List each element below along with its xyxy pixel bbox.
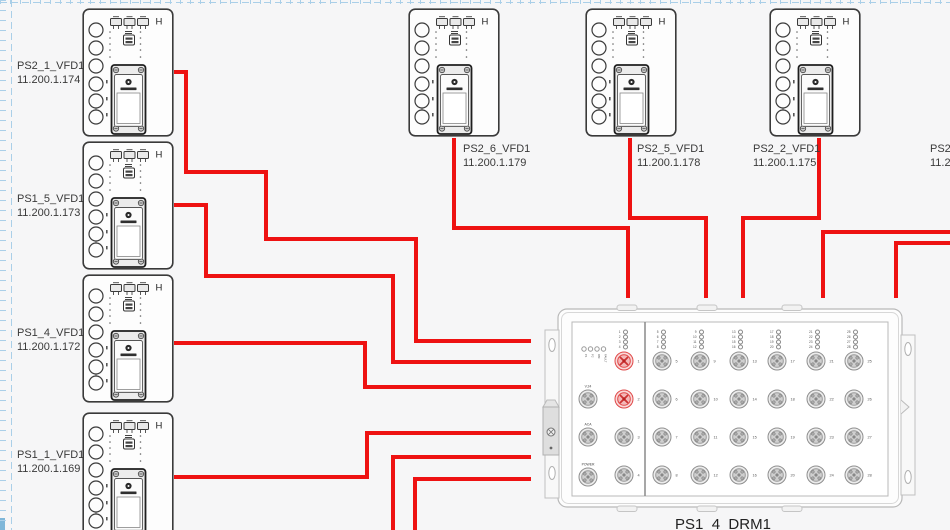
m12-port-8: [653, 466, 671, 484]
svg-text:19: 19: [791, 436, 795, 440]
svg-text:21: 21: [809, 330, 813, 334]
svg-text:28: 28: [847, 345, 851, 349]
device-ip: 11.200.1.178: [637, 157, 700, 169]
svg-text:3: 3: [619, 340, 621, 344]
svg-text:15: 15: [753, 436, 757, 440]
side-port-POWER: [579, 468, 597, 486]
m12-port-7: [653, 428, 671, 446]
m12-port-25: [845, 352, 863, 370]
svg-text:18: 18: [770, 335, 774, 339]
svg-text:H: H: [659, 17, 666, 28]
side-port-label: POWER: [582, 463, 595, 467]
svg-text:8: 8: [676, 474, 678, 478]
device-label: PS2_6_VFD1: [463, 143, 530, 155]
m12-port-6: [653, 390, 671, 408]
svg-text:27: 27: [868, 436, 872, 440]
svg-text:2: 2: [619, 335, 621, 339]
vfd-device-PS2_5_VFD1[interactable]: H: [585, 8, 677, 142]
m12-port-11: [691, 428, 709, 446]
status-led-label: FAULT: [604, 354, 608, 363]
diagram-canvas: H H H: [0, 0, 950, 530]
m12-port-14: [730, 390, 748, 408]
status-led-label: P1: [584, 354, 588, 358]
vfd-device-PS2_6_VFD1[interactable]: H: [408, 8, 500, 142]
svg-text:H: H: [156, 283, 163, 294]
svg-text:H: H: [156, 150, 163, 161]
svg-text:13: 13: [753, 360, 757, 364]
svg-text:10: 10: [693, 335, 697, 339]
network-cable-11[interactable]: [896, 243, 950, 298]
vfd-device-PS1_4_VFD1[interactable]: H: [82, 274, 174, 408]
m12-port-5: [653, 352, 671, 370]
status-led-label: P2: [591, 354, 595, 358]
device-label: PS1_5_VFD1: [17, 193, 84, 205]
m12-port-1: [615, 352, 633, 370]
device-ip: 11.200.1.175: [753, 157, 816, 169]
svg-text:23: 23: [809, 340, 813, 344]
m12-port-18: [768, 390, 786, 408]
network-cable-4[interactable]: [174, 433, 531, 477]
m12-port-27: [845, 428, 863, 446]
svg-text:26: 26: [847, 335, 851, 339]
svg-text:22: 22: [830, 398, 834, 402]
svg-text:12: 12: [693, 345, 697, 349]
m12-port-17: [768, 352, 786, 370]
svg-text:5: 5: [657, 330, 659, 334]
svg-text:13: 13: [732, 330, 736, 334]
device-ip: 11.200.1.169: [17, 463, 80, 475]
network-cable-6[interactable]: [415, 479, 531, 530]
side-port-label: ACA: [585, 423, 593, 427]
svg-text:25: 25: [847, 330, 851, 334]
m12-port-21: [807, 352, 825, 370]
svg-text:15: 15: [732, 340, 736, 344]
m12-port-28: [845, 466, 863, 484]
svg-text:4: 4: [638, 474, 640, 478]
svg-text:12: 12: [714, 474, 718, 478]
svg-text:26: 26: [868, 398, 872, 402]
svg-text:9: 9: [695, 330, 697, 334]
m12-port-26: [845, 390, 863, 408]
device-label: PS2_1_VFD1: [17, 60, 84, 72]
svg-text:1: 1: [638, 360, 640, 364]
svg-text:20: 20: [770, 345, 774, 349]
device-ip: 11.200.1.172: [17, 341, 80, 353]
svg-text:18: 18: [791, 398, 795, 402]
m12-port-16: [730, 466, 748, 484]
svg-text:16: 16: [732, 345, 736, 349]
svg-text:17: 17: [770, 330, 774, 334]
m12-port-23: [807, 428, 825, 446]
m12-port-22: [807, 390, 825, 408]
svg-text:11: 11: [714, 436, 718, 440]
svg-text:14: 14: [732, 335, 736, 339]
m12-port-2: [615, 390, 633, 408]
m12-port-10: [691, 390, 709, 408]
svg-text:19: 19: [770, 340, 774, 344]
network-cable-3[interactable]: [174, 343, 531, 387]
svg-text:7: 7: [676, 436, 678, 440]
m12-port-24: [807, 466, 825, 484]
svg-text:H: H: [482, 17, 489, 28]
device-ip: 11.200.1.174: [17, 74, 80, 86]
svg-text:28: 28: [868, 474, 872, 478]
svg-text:3: 3: [638, 436, 640, 440]
side-port-label: V.24: [585, 385, 592, 389]
side-port-ACA: [579, 428, 597, 446]
m12-port-19: [768, 428, 786, 446]
svg-text:20: 20: [791, 474, 795, 478]
m12-port-20: [768, 466, 786, 484]
device-ip: 11.2: [930, 157, 950, 169]
svg-text:9: 9: [714, 360, 716, 364]
status-led-label: RM: [597, 354, 601, 359]
svg-text:21: 21: [830, 360, 834, 364]
device-label: PS2_: [930, 143, 950, 155]
device-ip: 11.200.1.173: [17, 207, 80, 219]
svg-text:H: H: [156, 421, 163, 432]
svg-text:6: 6: [676, 398, 678, 402]
svg-text:1: 1: [619, 330, 621, 334]
vfd-device-PS1_5_VFD1[interactable]: H: [82, 141, 174, 275]
svg-text:H: H: [156, 17, 163, 28]
svg-text:24: 24: [830, 474, 834, 478]
m12-port-9: [691, 352, 709, 370]
device-label: PS2_5_VFD1: [637, 143, 704, 155]
vfd-device-PS2_2_VFD1[interactable]: H: [769, 8, 861, 142]
svg-text:23: 23: [830, 436, 834, 440]
svg-text:8: 8: [657, 345, 659, 349]
svg-text:5: 5: [676, 360, 678, 364]
svg-text:25: 25: [868, 360, 872, 364]
svg-text:2: 2: [638, 398, 640, 402]
svg-text:10: 10: [714, 398, 718, 402]
svg-text:7: 7: [657, 340, 659, 344]
svg-text:14: 14: [753, 398, 757, 402]
svg-text:4: 4: [619, 345, 621, 349]
vfd-device-PS1_1_VFD1[interactable]: H: [82, 412, 174, 530]
device-label: PS1_1_VFD1: [17, 449, 84, 461]
side-port-V.24: [579, 390, 597, 408]
m12-port-12: [691, 466, 709, 484]
vfd-device-PS2_1_VFD1[interactable]: H: [82, 8, 174, 142]
svg-text:17: 17: [791, 360, 795, 364]
svg-text:22: 22: [809, 335, 813, 339]
m12-port-4: [615, 466, 633, 484]
svg-text:16: 16: [753, 474, 757, 478]
svg-text:H: H: [843, 17, 850, 28]
m12-port-3: [615, 428, 633, 446]
m12-port-13: [730, 352, 748, 370]
device-ip: 11.200.1.179: [463, 157, 526, 169]
m12-port-15: [730, 428, 748, 446]
svg-text:24: 24: [809, 345, 813, 349]
drm-switch-device[interactable]: P1P2RMFAULT12345678910111213141516171819…: [542, 304, 922, 519]
device-label: PS2_2_VFD1: [753, 143, 820, 155]
device-label: PS1_4_VFD1: [17, 327, 84, 339]
svg-text:6: 6: [657, 335, 659, 339]
drm-device-label: PS1_4_DRM1: [643, 516, 803, 530]
svg-text:27: 27: [847, 340, 851, 344]
svg-text:11: 11: [693, 340, 697, 344]
